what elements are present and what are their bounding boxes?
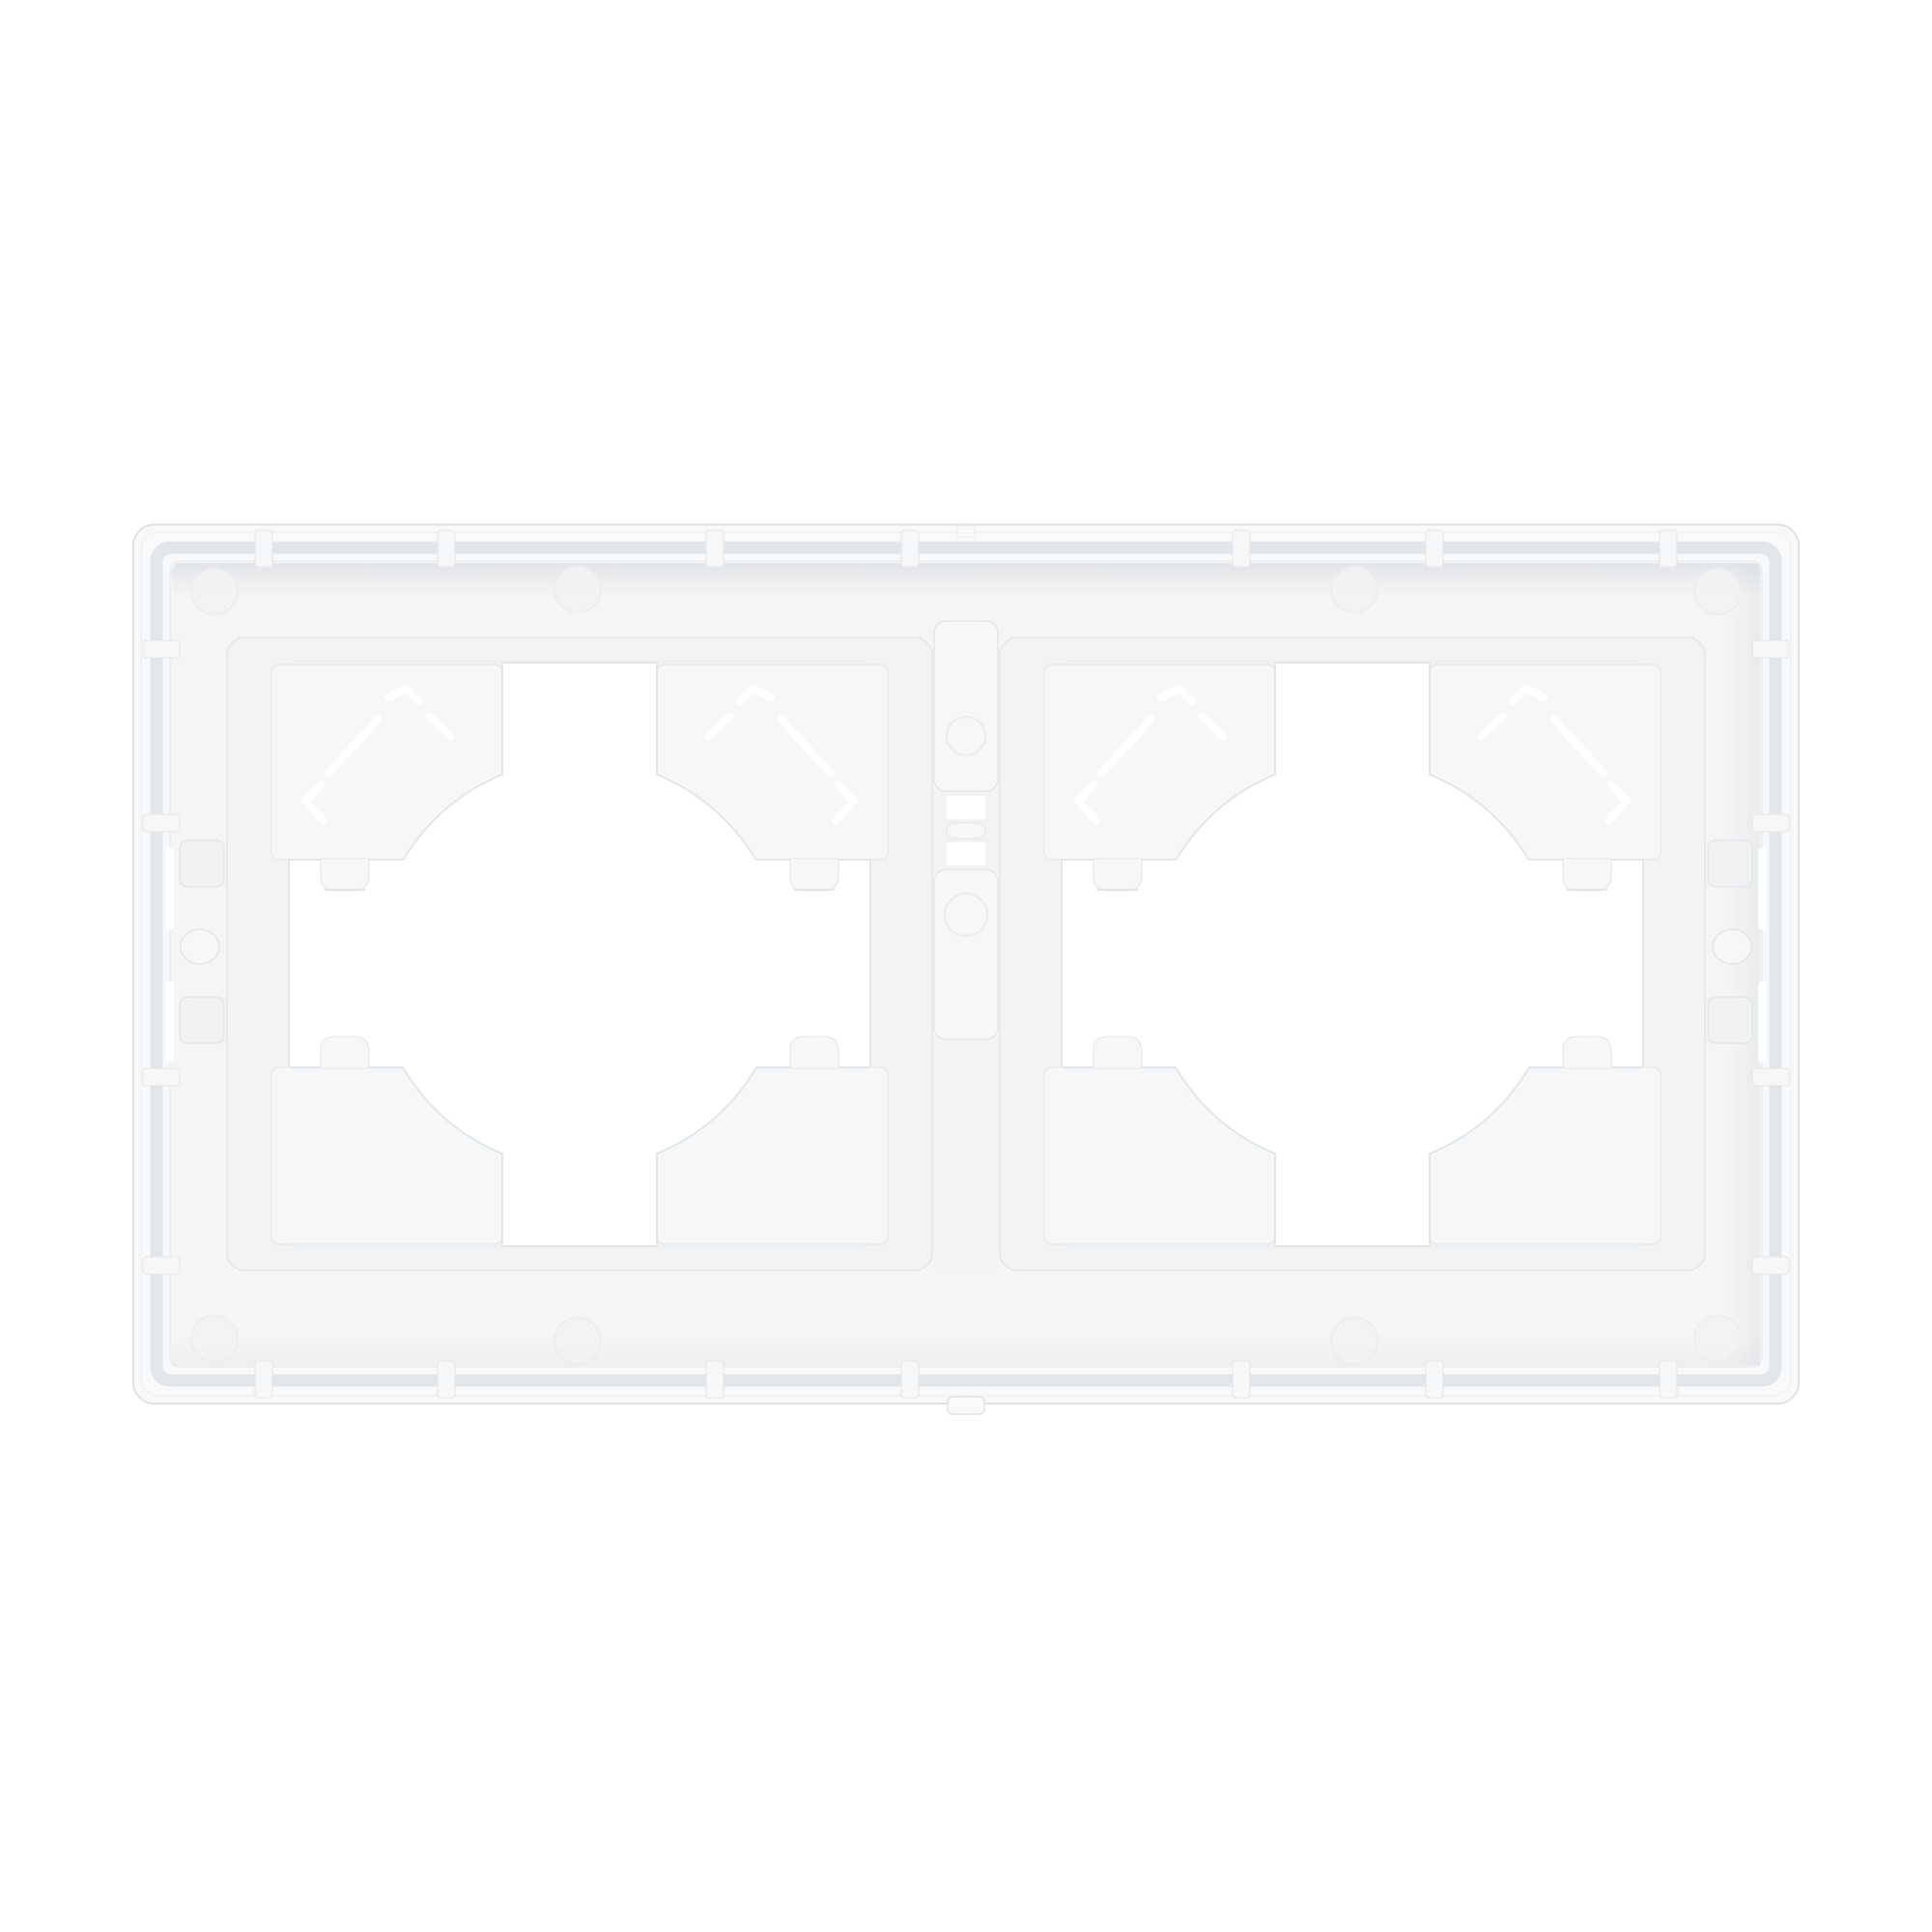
mounting-rib [1233,1361,1250,1398]
mounting-rib [438,1361,455,1398]
mounting-rib [706,1361,724,1398]
clip-bump [181,929,219,964]
product-photo: Rear view of a white plastic two-gang wa… [0,0,1932,1932]
screw-boss [1331,1318,1378,1364]
mounting-rib [1660,1361,1677,1398]
inner-top-shadow [172,563,1760,596]
mounting-rib [143,814,180,832]
mounting-rib [1752,1257,1789,1274]
bridge-pill [947,823,985,838]
mounting-rib [1233,530,1250,567]
screw-boss [1694,1316,1741,1362]
mounting-rib [1752,640,1789,658]
screw-boss [554,1318,601,1364]
right-socket-module [1000,638,1705,1270]
mounting-rib [706,530,724,567]
bridge-cutout [946,795,986,820]
clip-slit [166,848,174,929]
clip-window [1708,997,1752,1043]
screw-boss [554,566,601,612]
socket-frame-illustration [0,0,1932,1932]
bridge-cutout [946,841,986,867]
mounting-rib [1660,530,1677,567]
mounting-rib [255,1361,272,1398]
screw-boss [1694,568,1741,614]
clip-window [180,997,224,1043]
mounting-rib [255,530,272,567]
top-center-seam [957,526,975,537]
screw-boss [191,1316,238,1362]
clip-slit [1758,848,1766,929]
mounting-rib [143,640,180,658]
left-socket-module [227,638,932,1270]
screw-boss [1331,566,1378,612]
clip-bump [1713,929,1751,964]
mounting-rib [901,530,919,567]
inner-bottom-shadow [172,1339,1760,1366]
mounting-rib [1426,530,1443,567]
mounting-rib [143,1068,180,1086]
bottom-center-tab [948,1397,984,1414]
mounting-rib [1426,1361,1443,1398]
mounting-rib [438,530,455,567]
bridge-tab-lower [934,869,998,1039]
mounting-rib [143,1257,180,1274]
center-bridge [934,621,998,1268]
bridge-tab-upper [934,621,998,791]
clip-window [180,840,224,887]
clip-window [1708,840,1752,887]
screw-boss [191,568,238,614]
mounting-rib [1752,814,1789,832]
clip-slit [166,981,174,1063]
mounting-rib [1752,1068,1789,1086]
mounting-rib [901,1361,919,1398]
clip-slit [1758,981,1766,1063]
